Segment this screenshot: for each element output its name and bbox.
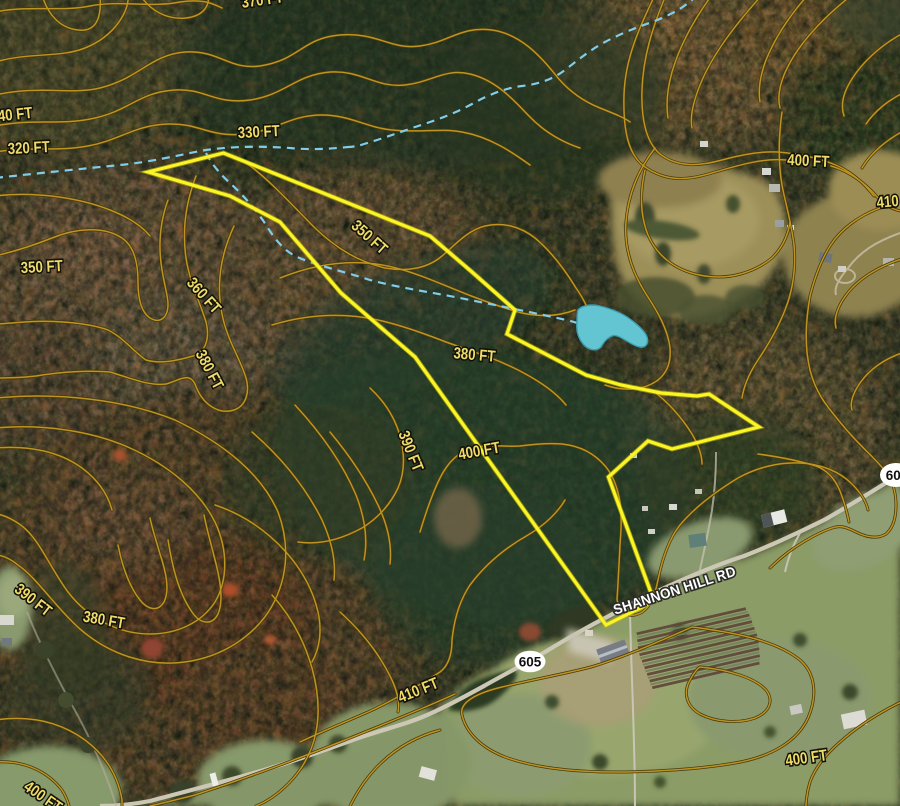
svg-text:320 FT: 320 FT (7, 139, 50, 158)
svg-text:330 FT: 330 FT (237, 123, 280, 142)
svg-text:410 FT: 410 FT (876, 191, 900, 212)
svg-text:350 FT: 350 FT (20, 258, 63, 277)
svg-text:400 FT: 400 FT (787, 152, 830, 171)
svg-text:605: 605 (886, 468, 900, 483)
svg-text:605: 605 (519, 655, 542, 670)
